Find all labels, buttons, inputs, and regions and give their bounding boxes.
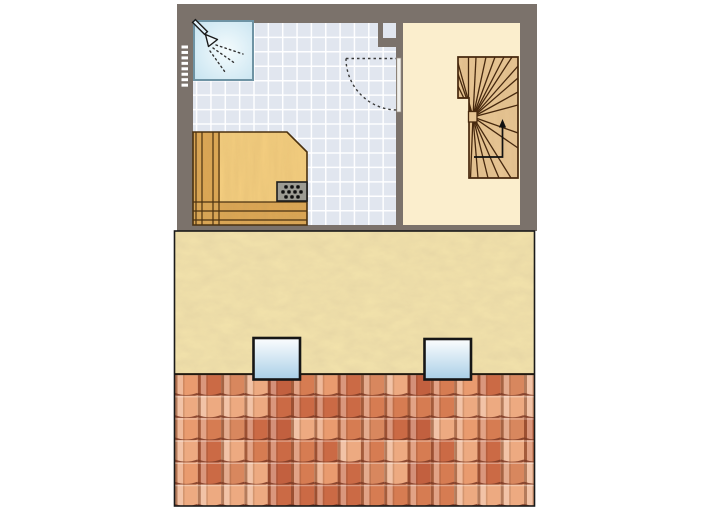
roof-tile	[524, 462, 547, 485]
attic-plan-and-roof-drawing	[0, 0, 713, 519]
roof-tile	[454, 440, 477, 463]
roof-tile	[244, 462, 267, 485]
roof-tile	[221, 418, 244, 441]
roof-tile	[431, 396, 454, 419]
roof-tile	[408, 396, 431, 419]
roof-tile	[361, 462, 384, 485]
roof-tile	[361, 418, 384, 441]
roof-tile	[477, 374, 500, 397]
roof-tile	[501, 374, 524, 397]
roof-tile	[338, 462, 361, 485]
roof-tile	[338, 418, 361, 441]
roof-tile	[268, 485, 291, 508]
roof-tile	[221, 374, 244, 397]
roof-tile	[198, 462, 221, 485]
roof-tile	[524, 418, 547, 441]
roof-tile	[291, 440, 314, 463]
architectural-drawing-canvas	[0, 0, 713, 519]
roof-tile	[314, 418, 337, 441]
roof-elevation	[175, 231, 548, 507]
roof-tile	[501, 485, 524, 508]
roof-tile	[477, 462, 500, 485]
roof-tile	[524, 374, 547, 397]
roof-tile	[198, 374, 221, 397]
roof-tile	[268, 440, 291, 463]
roof-tile	[454, 462, 477, 485]
roof-tile	[221, 440, 244, 463]
roof-tile	[244, 396, 267, 419]
roof-tile	[221, 462, 244, 485]
roof-tile	[175, 462, 198, 485]
roof-tile	[454, 418, 477, 441]
divider-wall-upper	[396, 23, 403, 58]
roof-tile	[361, 485, 384, 508]
roof-tile	[384, 485, 407, 508]
roof-tile	[384, 462, 407, 485]
roof-tile	[408, 440, 431, 463]
roof-tile	[338, 440, 361, 463]
roof-tile	[291, 462, 314, 485]
roof-tile	[501, 396, 524, 419]
roof-tile	[314, 485, 337, 508]
roof-tile	[477, 485, 500, 508]
roof-tile	[431, 485, 454, 508]
roof-tile	[198, 440, 221, 463]
floor-plan	[177, 4, 537, 231]
roof-tile	[175, 440, 198, 463]
roof-tile	[454, 485, 477, 508]
roof-tile	[338, 374, 361, 397]
roof-tile	[384, 396, 407, 419]
roof-tile	[198, 396, 221, 419]
roof-tile	[384, 440, 407, 463]
skylight-window	[425, 339, 472, 380]
roof-tile	[221, 396, 244, 419]
roof-tile	[384, 418, 407, 441]
roof-tile	[314, 440, 337, 463]
roof-tile	[431, 440, 454, 463]
roof-tile	[501, 462, 524, 485]
roof-tile	[501, 418, 524, 441]
roof-tile	[244, 418, 267, 441]
roof-tile	[268, 462, 291, 485]
roof-tile	[268, 418, 291, 441]
roof-tile	[501, 440, 524, 463]
roof-tiles	[175, 374, 548, 508]
roof-tile	[268, 396, 291, 419]
roof-tile	[314, 462, 337, 485]
roof-tile	[314, 396, 337, 419]
roof-tile	[361, 374, 384, 397]
stucco-texture	[175, 231, 535, 374]
door-leaf	[397, 58, 401, 112]
wall-niche	[383, 23, 396, 38]
roof-tile	[384, 374, 407, 397]
roof-tile	[524, 396, 547, 419]
roof-tile	[221, 485, 244, 508]
roof-tile	[408, 418, 431, 441]
roof-tile	[291, 485, 314, 508]
roof-tile	[408, 485, 431, 508]
roof-tile	[524, 440, 547, 463]
roof-tile	[175, 396, 198, 419]
roof-tile	[314, 374, 337, 397]
divider-wall-lower	[396, 113, 403, 225]
roof-tile	[175, 485, 198, 508]
roof-tile	[244, 485, 267, 508]
roof-tile	[477, 418, 500, 441]
roof-tile	[291, 418, 314, 441]
roof-tile	[198, 485, 221, 508]
skylight-window	[254, 338, 301, 380]
roof-tile	[361, 396, 384, 419]
roof-tile	[291, 396, 314, 419]
roof-tile	[477, 396, 500, 419]
roof-tile	[338, 485, 361, 508]
roof-tile	[524, 485, 547, 508]
roof-tile	[244, 440, 267, 463]
roof-tile	[431, 418, 454, 441]
roof-tile	[175, 374, 198, 397]
roof-tile	[454, 396, 477, 419]
roof-tile	[175, 418, 198, 441]
roof-tile	[431, 462, 454, 485]
roof-tile	[477, 440, 500, 463]
roof-tile	[338, 396, 361, 419]
roof-tile	[408, 462, 431, 485]
stair-newel-post	[469, 112, 478, 123]
sauna-wood-detail	[193, 132, 307, 225]
roof-tile	[361, 440, 384, 463]
roof-tile	[198, 418, 221, 441]
